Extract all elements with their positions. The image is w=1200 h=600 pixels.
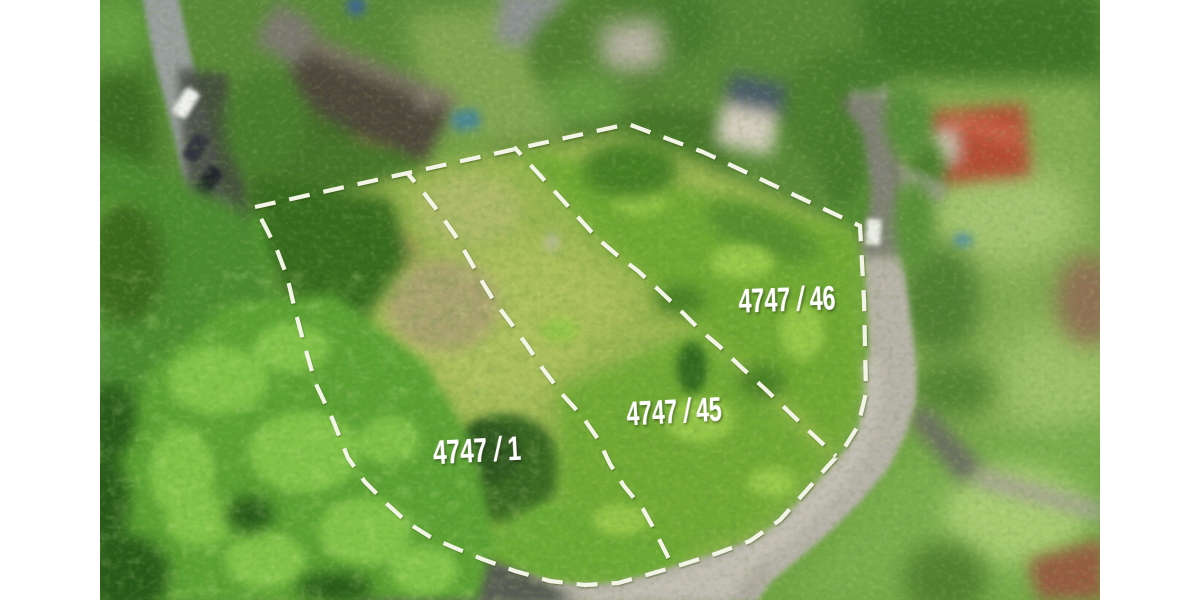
- svg-text:4747 / 45: 4747 / 45: [626, 391, 723, 434]
- svg-text:4747 / 1: 4747 / 1: [432, 430, 522, 473]
- svg-text:4747 / 46: 4747 / 46: [738, 279, 836, 320]
